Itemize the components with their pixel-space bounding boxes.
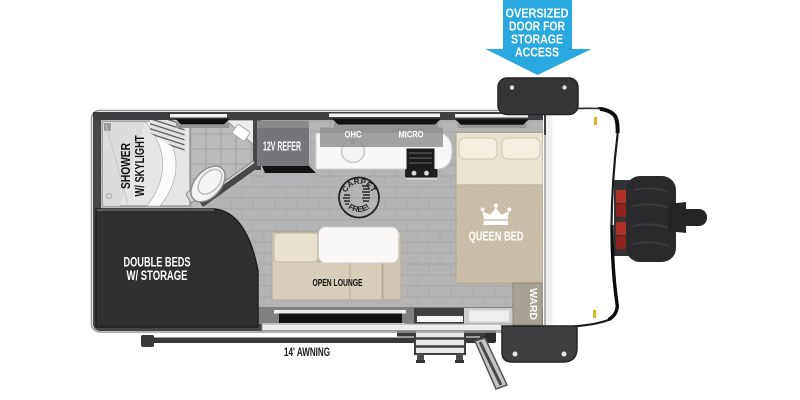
svg-text:14' AWNING: 14' AWNING (284, 345, 330, 359)
svg-text:MICRO: MICRO (399, 130, 424, 141)
svg-text:W/ STORAGE: W/ STORAGE (127, 268, 188, 283)
svg-text:STORAGE: STORAGE (511, 33, 563, 47)
svg-text:12V REFER: 12V REFER (263, 140, 301, 154)
svg-text:OPEN LOUNGE: OPEN LOUNGE (313, 277, 363, 289)
svg-text:DOOR FOR: DOOR FOR (509, 20, 565, 34)
svg-text:W/ SKYLIGHT: W/ SKYLIGHT (132, 135, 147, 196)
svg-text:QUEEN BED: QUEEN BED (469, 228, 524, 243)
svg-text:SHOWER: SHOWER (118, 143, 133, 189)
svg-text:ACCESS: ACCESS (515, 46, 559, 60)
svg-text:WARD: WARD (527, 288, 539, 320)
svg-text:OVERSIZED: OVERSIZED (506, 7, 569, 21)
svg-text:OHC: OHC (345, 130, 362, 141)
